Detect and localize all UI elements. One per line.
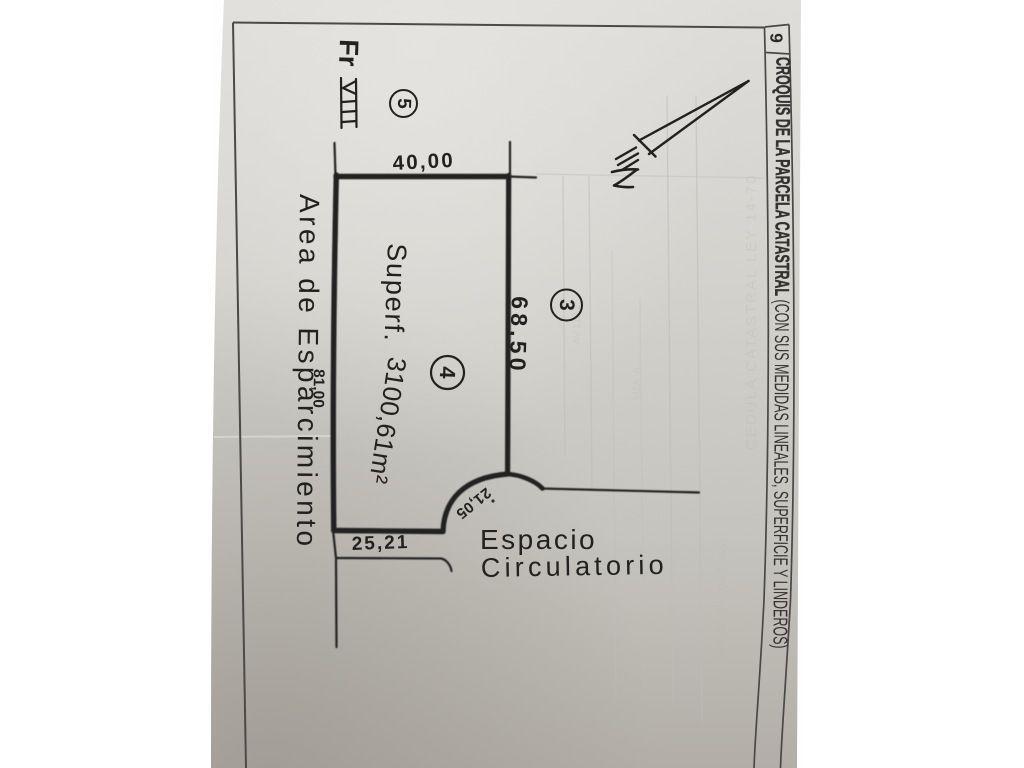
svg-text:9: 9 <box>766 33 786 43</box>
svg-text:Circulatorio: Circulatorio <box>481 550 668 583</box>
svg-text:68,50: 68,50 <box>504 296 533 375</box>
svg-text:25,21: 25,21 <box>351 532 409 555</box>
svg-text:CEDULA CATASTRAL LEY 14-70: CEDULA CATASTRAL LEY 14-70 <box>743 173 760 450</box>
svg-text:4: 4 <box>435 366 460 380</box>
svg-text:JAPYM LEY ORT AVD: JAPYM LEY ORT AVD <box>717 538 729 665</box>
svg-text:Superf.: Superf. <box>379 243 412 344</box>
svg-text:40,00: 40,00 <box>392 149 455 175</box>
svg-text:MZA VL: MZA VL <box>632 364 643 400</box>
svg-text:CROQUIS DE LA PARCELA CATASTRA: CROQUIS DE LA PARCELA CATASTRAL (CON SUS… <box>769 57 794 649</box>
svg-text:5: 5 <box>393 98 414 110</box>
svg-text:3: 3 <box>555 299 578 311</box>
svg-text:Fr: Fr <box>333 39 364 68</box>
